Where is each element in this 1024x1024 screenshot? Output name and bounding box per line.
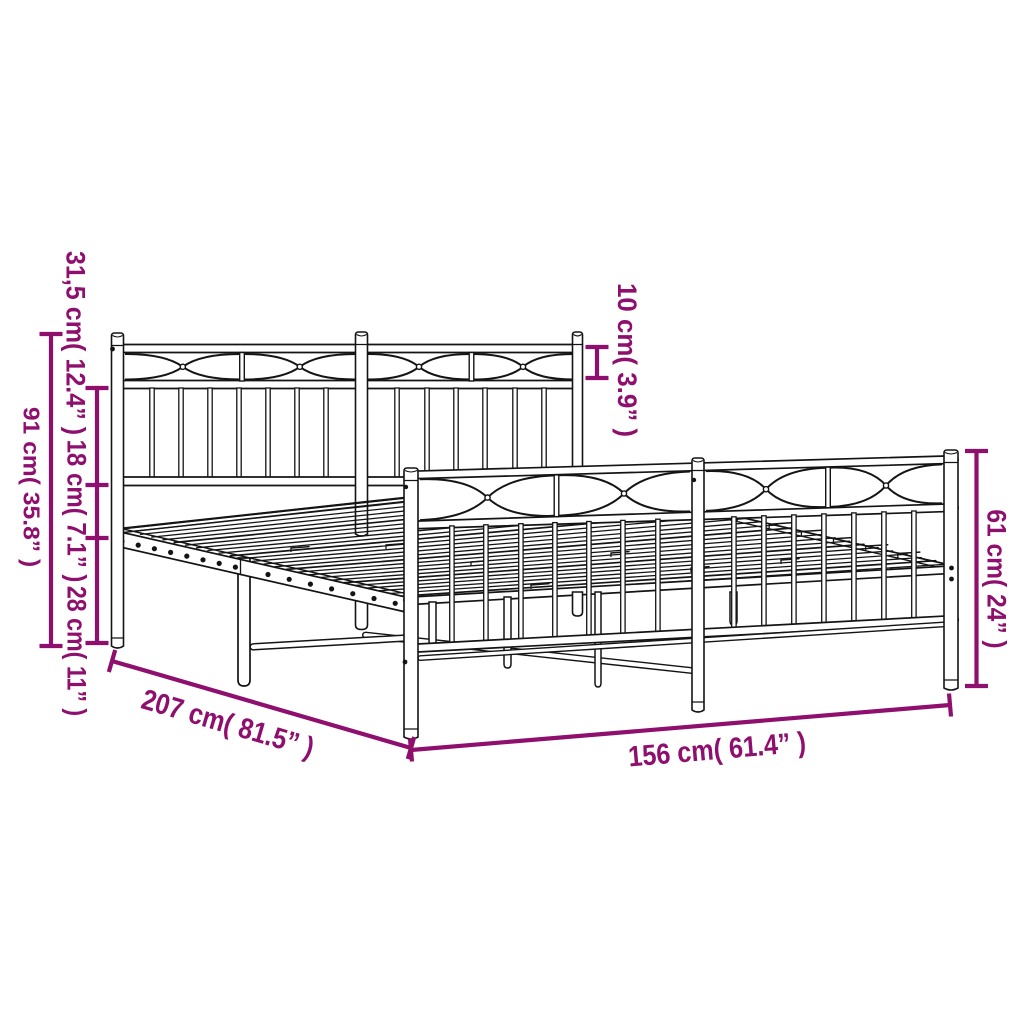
svg-text:91 cm( 35.8” ): 91 cm( 35.8” ) — [18, 407, 44, 567]
svg-text:31,5 cm( 12.4” ): 31,5 cm( 12.4” ) — [60, 251, 91, 435]
svg-text:10 cm( 3.9” ): 10 cm( 3.9” ) — [612, 283, 643, 437]
svg-text:28 cm( 11” ): 28 cm( 11” ) — [61, 586, 91, 716]
svg-text:61 cm( 24” ): 61 cm( 24” ) — [981, 509, 1010, 648]
svg-text:18 cm( 7.1” ): 18 cm( 7.1” ) — [61, 440, 91, 583]
